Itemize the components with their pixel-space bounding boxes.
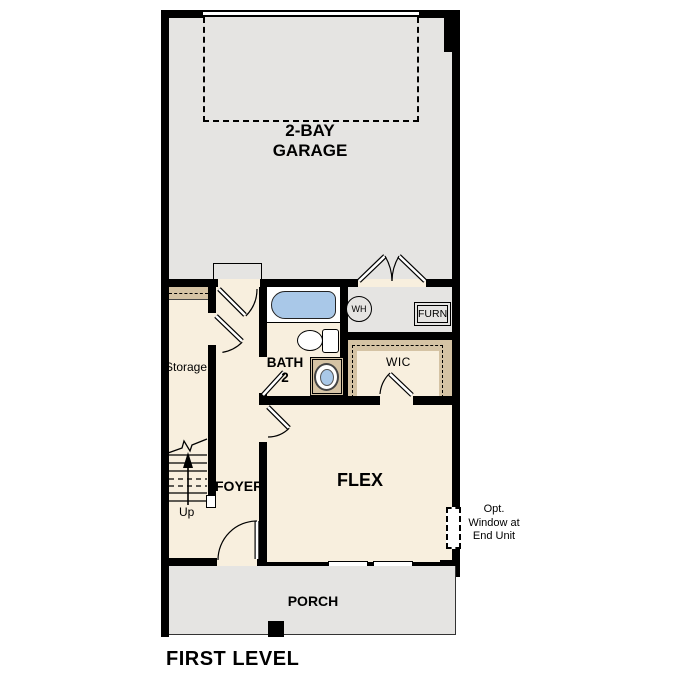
opt-window-note-line3: End Unit xyxy=(454,530,534,544)
plan-title: FIRST LEVEL xyxy=(166,648,299,671)
wic-label: WIC xyxy=(386,355,411,369)
bathtub xyxy=(271,291,336,319)
water-heater: WH xyxy=(346,296,372,322)
water-heater-label: WH xyxy=(352,304,367,314)
garage-label-line1: 2-BAY xyxy=(230,121,390,141)
bath-label-line2: 2 xyxy=(262,370,308,385)
toilet-tank xyxy=(322,329,339,353)
wall-foyer-east xyxy=(259,442,267,560)
wall-stair-east xyxy=(208,345,216,495)
wall-flex-north-a xyxy=(259,396,380,405)
garage-label-line2: GARAGE xyxy=(230,141,390,161)
garage-door xyxy=(203,10,419,17)
stair-up-label: Up xyxy=(179,505,194,519)
furnace-label: FURN xyxy=(418,308,447,320)
garage-entry-stoop xyxy=(213,263,262,280)
flex-label: FLEX xyxy=(337,470,383,491)
wall-bath-west-upper xyxy=(259,287,267,357)
wall-garage-south-b xyxy=(260,279,358,287)
wall-left xyxy=(161,10,169,637)
storage-shelf xyxy=(169,287,208,300)
wall-garage-south-a xyxy=(169,279,218,287)
wall-storage-east-upper xyxy=(208,287,216,313)
storage-shelf-dashed-line xyxy=(169,293,208,294)
garage-door-setback-dashed xyxy=(203,17,419,122)
bath-label-line1: BATH xyxy=(262,355,308,370)
porch-label: PORCH xyxy=(288,593,339,609)
wall-top-left xyxy=(161,10,203,18)
porch-post xyxy=(268,621,284,637)
furnace: FURN xyxy=(414,302,451,326)
opt-window-note-line1: Opt. xyxy=(454,503,534,517)
wall-flex-north-b xyxy=(413,396,460,405)
toilet-bowl xyxy=(297,330,323,351)
floor-plan: WH FURN xyxy=(0,0,687,687)
wall-utility-wic xyxy=(348,332,452,340)
vanity-sink-basin xyxy=(320,369,334,386)
foyer-label: FOYER xyxy=(215,478,263,494)
furnace-inner-box: FURN xyxy=(417,305,448,323)
opt-window-note: Opt. Window at End Unit xyxy=(454,503,534,544)
garage-label: 2-BAY GARAGE xyxy=(230,121,390,161)
storage-label: Storage xyxy=(165,360,207,374)
opt-window-note-line2: Window at xyxy=(454,517,534,531)
stair-newel xyxy=(206,495,216,508)
bath-label: BATH 2 xyxy=(262,355,308,385)
wall-garage-south-c xyxy=(426,279,452,287)
wall-right xyxy=(452,10,460,577)
